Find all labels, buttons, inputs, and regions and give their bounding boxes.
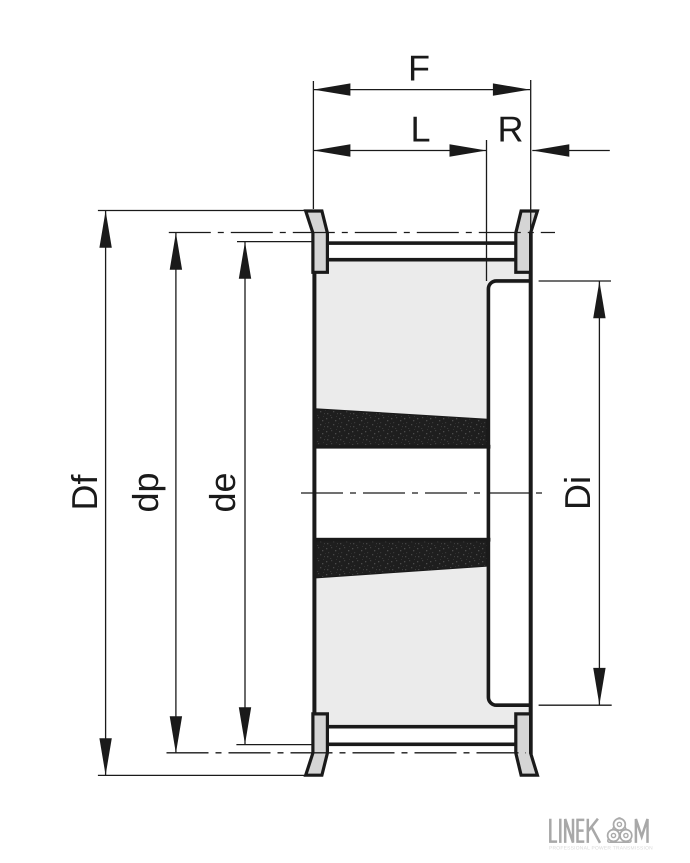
svg-text:PROFESSIONAL POWER TRANSMISSIO: PROFESSIONAL POWER TRANSMISSION — [549, 845, 653, 851]
svg-text:Df: Df — [64, 474, 105, 511]
svg-text:R: R — [498, 109, 524, 150]
svg-text:L: L — [410, 109, 430, 150]
svg-text:Di: Di — [557, 476, 598, 510]
svg-text:F: F — [408, 48, 430, 89]
svg-text:dp: dp — [125, 472, 166, 512]
svg-text:de: de — [202, 472, 243, 512]
